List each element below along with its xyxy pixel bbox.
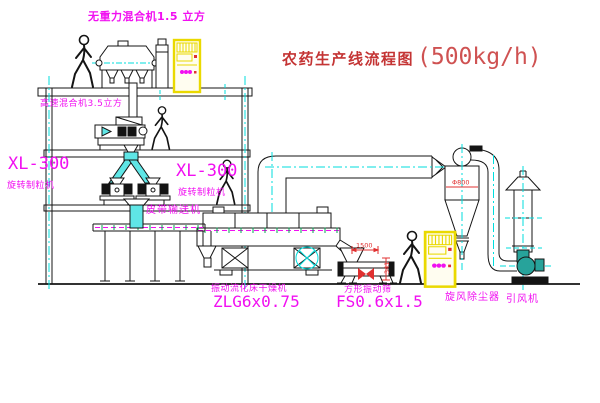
dryer-model-label: ZLG6x0.75 xyxy=(213,294,300,310)
gravity-free-mixer-label: 无重力混合机1.5 立方 xyxy=(88,11,205,22)
cyclone-diameter-dim: Φ800 xyxy=(452,179,470,187)
exhaust-duct xyxy=(258,152,462,213)
induced-draft-fan xyxy=(512,250,548,283)
title-chinese: 农药生产线流程图 xyxy=(282,48,414,69)
granulator-right-label: 旋转制粒机 xyxy=(178,189,226,198)
diagram-canvas: 1500 341 Φ800 xyxy=(0,0,600,403)
belt-conveyor xyxy=(93,224,205,281)
sieve-model-label: FS0.6x1.5 xyxy=(336,294,423,310)
cyclone-label: 旋风除尘器 xyxy=(445,293,500,303)
control-cabinet-lower xyxy=(425,232,455,287)
belt-conveyor-label: 皮带输送机 xyxy=(146,206,201,216)
high-speed-mixer-label: 高速混合机3.5立方 xyxy=(40,100,122,109)
title-capacity: (500kg/h) xyxy=(417,44,542,70)
fluid-bed-dryer xyxy=(197,207,353,275)
xl300-right-label: XL-300 xyxy=(176,163,237,180)
bucket-elevator xyxy=(156,39,168,88)
granulator-left-label: 旋转制粒机 xyxy=(7,182,55,191)
high-speed-mixer xyxy=(95,117,147,152)
person-second-floor xyxy=(152,107,169,149)
sieve-height-dim: 341 xyxy=(383,262,391,274)
person-ground xyxy=(400,232,421,284)
fan-label: 引风机 xyxy=(506,295,539,305)
control-cabinet-upper xyxy=(174,40,200,92)
sieve-length-dim: 1500 xyxy=(356,242,373,250)
xl300-left-label: XL-300 xyxy=(8,156,69,173)
person-roof xyxy=(72,36,93,88)
page-title: 农药生产线流程图 (500kg/h) xyxy=(282,44,542,70)
downcomer-duct xyxy=(471,149,552,271)
